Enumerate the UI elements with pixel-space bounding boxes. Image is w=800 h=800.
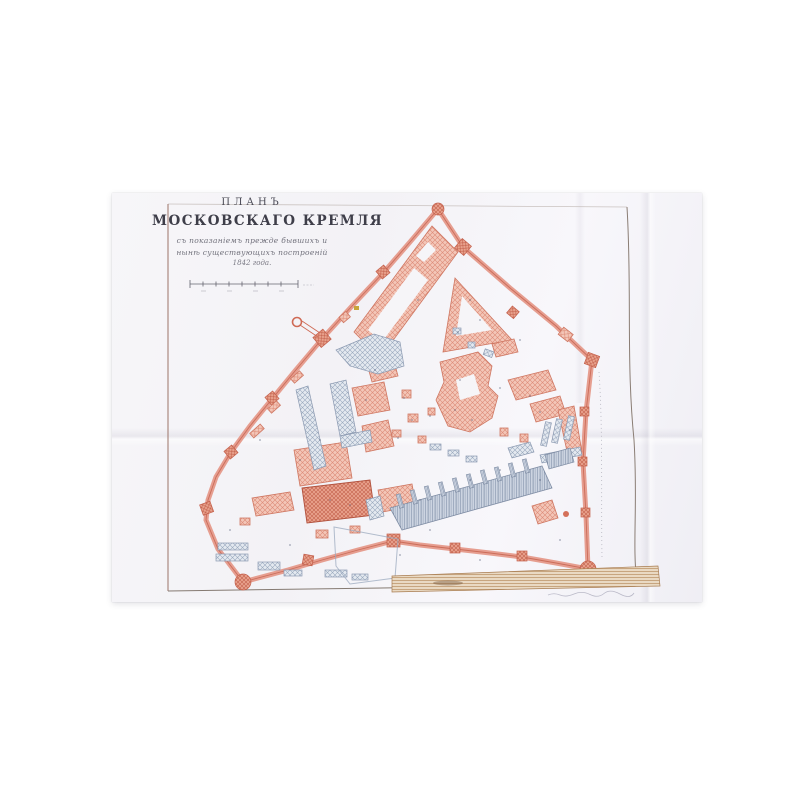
map-title: МОСКОВСКАГО КРЕМЛЯ: [152, 213, 352, 229]
grand-kremlin-palace: [302, 480, 375, 523]
map-subtitle-line1: съ показаніемъ прежде бывшихъ и: [152, 236, 352, 245]
gate-tower: [302, 554, 314, 566]
armoury-building: [252, 492, 294, 516]
borovitskaya-gate-tower: [200, 501, 214, 515]
map-year: 1842 года.: [152, 259, 352, 267]
kremlin-plan-drawing: [0, 0, 800, 800]
kutafya-tower-and-bridge: [293, 318, 321, 338]
corner-arsenal-tower: [432, 203, 444, 215]
gate-tower: [450, 543, 460, 553]
gate-tower: [507, 306, 520, 319]
gate-tower: [581, 508, 590, 517]
title-block: ПЛАНЪ МОСКОВСКАГО КРЕМЛЯ съ показаніемъ …: [152, 197, 352, 267]
gate-tower: [517, 551, 527, 561]
map-subtitle-line2: нынѣ существующихъ построеній: [152, 248, 352, 257]
red-dot-marker: [563, 511, 569, 517]
yellow-marker: [354, 306, 359, 310]
embankment-band: [392, 566, 660, 592]
scale-bar: [190, 280, 314, 291]
gate-tower: [578, 457, 587, 466]
signature-scribble: [548, 591, 634, 596]
gate-tower: [580, 407, 589, 416]
moat-dotted-line: [599, 372, 602, 558]
plan-kicker: ПЛАНЪ: [152, 197, 352, 208]
photographed-map-document: ПЛАНЪ МОСКОВСКАГО КРЕМЛЯ съ показаніемъ …: [0, 0, 800, 800]
vodovzvodnaya-corner-tower: [235, 574, 251, 590]
